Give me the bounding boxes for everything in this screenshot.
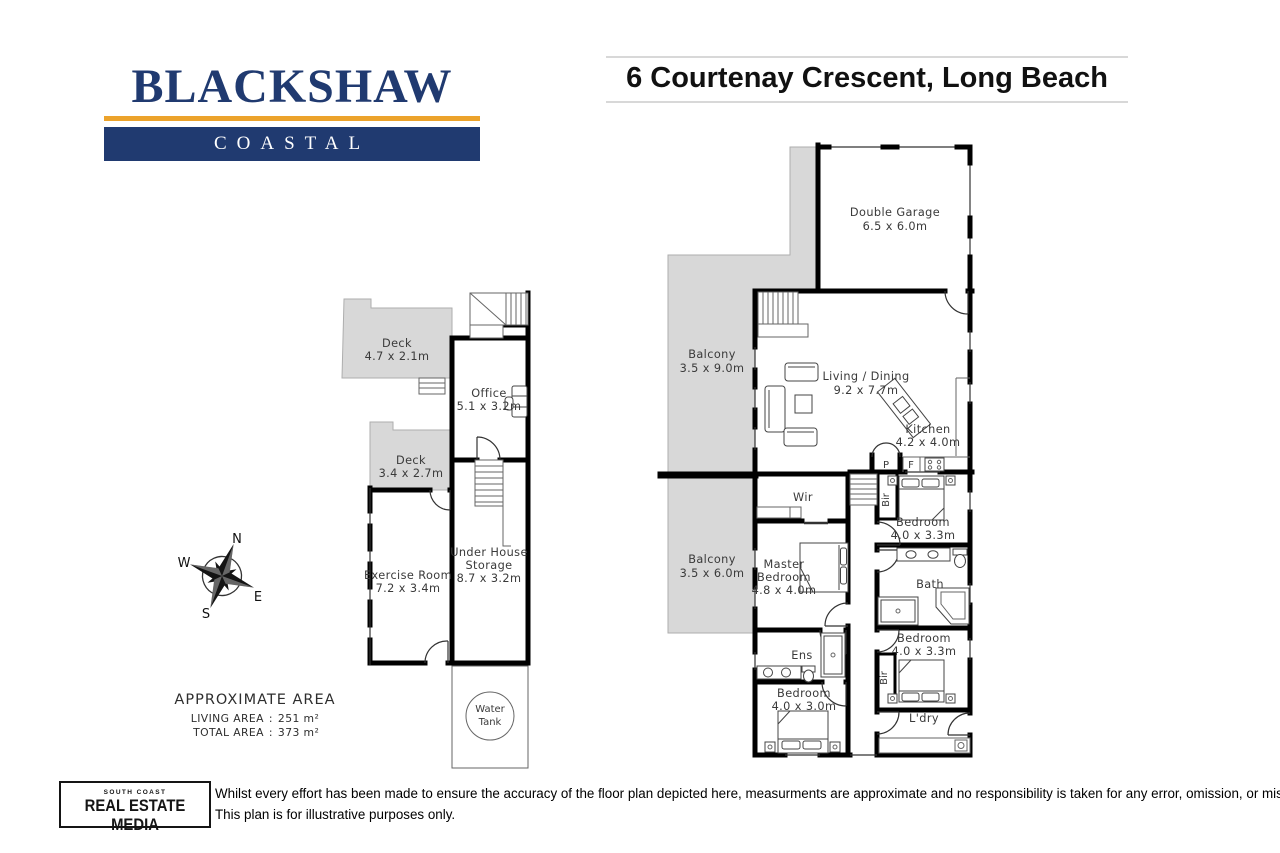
room-label: Storage [465,559,512,572]
vanity-icon [757,666,801,679]
pantry-label: P [883,460,889,471]
upper-floor-plan: Double Garage 6.5 x 6.0m Balcony 3.5 x 9… [661,145,972,755]
media-logo-main: REAL ESTATE MEDIA [68,797,201,835]
room-label: Balcony [688,553,736,566]
room-dims: 4.0 x 3.0m [772,700,837,713]
fridge-label: F [908,460,914,471]
stairs-icon [475,460,511,546]
shower-icon [821,633,845,677]
corner-bathtub-icon [936,588,969,624]
compass-n: N [232,532,242,547]
colon: : [269,712,273,726]
living-area-label: LIVING AREA [191,712,264,726]
disclaimer-line-1: Whilst every effort has been made to ens… [215,784,1225,805]
stairs-icon [850,474,877,505]
compass-w: W [178,556,191,571]
room-dims: 4.0 x 3.3m [891,529,956,542]
room-label: Exercise Room [364,569,452,582]
room-label: Master [764,558,805,571]
room-label: Living / Dining [822,370,909,383]
room-label: Deck [382,337,412,350]
closet-walls [877,474,897,700]
compass-e: E [254,590,262,605]
area-summary: APPROXIMATE AREA LIVING AREA : 251 m² TO… [145,692,365,740]
room-label: Water [475,704,505,715]
room-dims: 4.0 x 3.3m [892,645,957,658]
room-label: Bir [879,670,890,685]
media-logo-top: SOUTH COAST [61,789,209,796]
disclaimer-line-2: This plan is for illustrative purposes o… [215,805,1225,826]
bed-icon [765,711,840,753]
room-label: Bir [881,492,892,507]
living-area-value: 251 m² [278,712,319,726]
room-dims: 4.8 x 4.0m [752,584,817,597]
lower-floor-plan: Deck 4.7 x 2.1m Office 5.1 x 3.2m Deck 3… [342,293,528,768]
media-logo: SOUTH COAST REAL ESTATE MEDIA [59,781,211,828]
deck-steps-icon [419,378,445,394]
floorplan-page: BLACKSHAW COASTAL 6 Courtenay Crescent, … [0,0,1280,853]
room-dims: 3.5 x 9.0m [680,362,745,375]
compass-icon: N W E S [178,532,266,622]
room-label: Bath [916,578,944,591]
room-label: Kitchen [905,423,950,436]
room-dims: 7.2 x 3.4m [376,582,441,595]
room-label: Ens [791,649,812,662]
total-area-label: TOTAL AREA [193,726,264,740]
room-label: Double Garage [850,206,940,219]
laundry-bench-icon [879,738,970,753]
stairs-icon [758,292,808,337]
room-label: Office [471,387,507,400]
room-dims: 5.1 x 3.2m [457,400,522,413]
room-dims: 9.2 x 7.7m [834,384,899,397]
room-label: Bedroom [897,632,951,645]
room-dims: 3.5 x 6.0m [680,567,745,580]
room-label: Under House [450,546,528,559]
vanity-icon [897,548,950,561]
colon: : [269,726,273,740]
room-dims: 4.2 x 4.0m [896,436,961,449]
toilet-icon [953,549,967,568]
room-label: Deck [396,454,426,467]
disclaimer: Whilst every effort has been made to ens… [215,784,1225,826]
coffee-table-icon [795,395,812,413]
total-area-value: 373 m² [278,726,319,740]
room-label: Bedroom [777,687,831,700]
shower-icon [878,597,918,625]
compass-s: S [202,607,210,622]
room-label: Bedroom [757,571,811,584]
room-label: Tank [478,717,502,728]
room-dims: 6.5 x 6.0m [863,220,928,233]
toilet-icon [802,666,815,682]
room-label: Balcony [688,348,736,361]
stove-icon [925,458,944,471]
room-label: L'dry [909,712,939,725]
robe-shelf-icon [757,507,801,518]
room-dims: 3.4 x 2.7m [379,467,444,480]
room-label: Bedroom [896,516,950,529]
room-dims: 4.7 x 2.1m [365,350,430,363]
bed-icon [888,660,955,703]
room-dims: 8.7 x 3.2m [457,572,522,585]
area-title: APPROXIMATE AREA [145,692,365,708]
room-label: Wir [793,491,813,504]
stairs-icon [470,293,528,338]
